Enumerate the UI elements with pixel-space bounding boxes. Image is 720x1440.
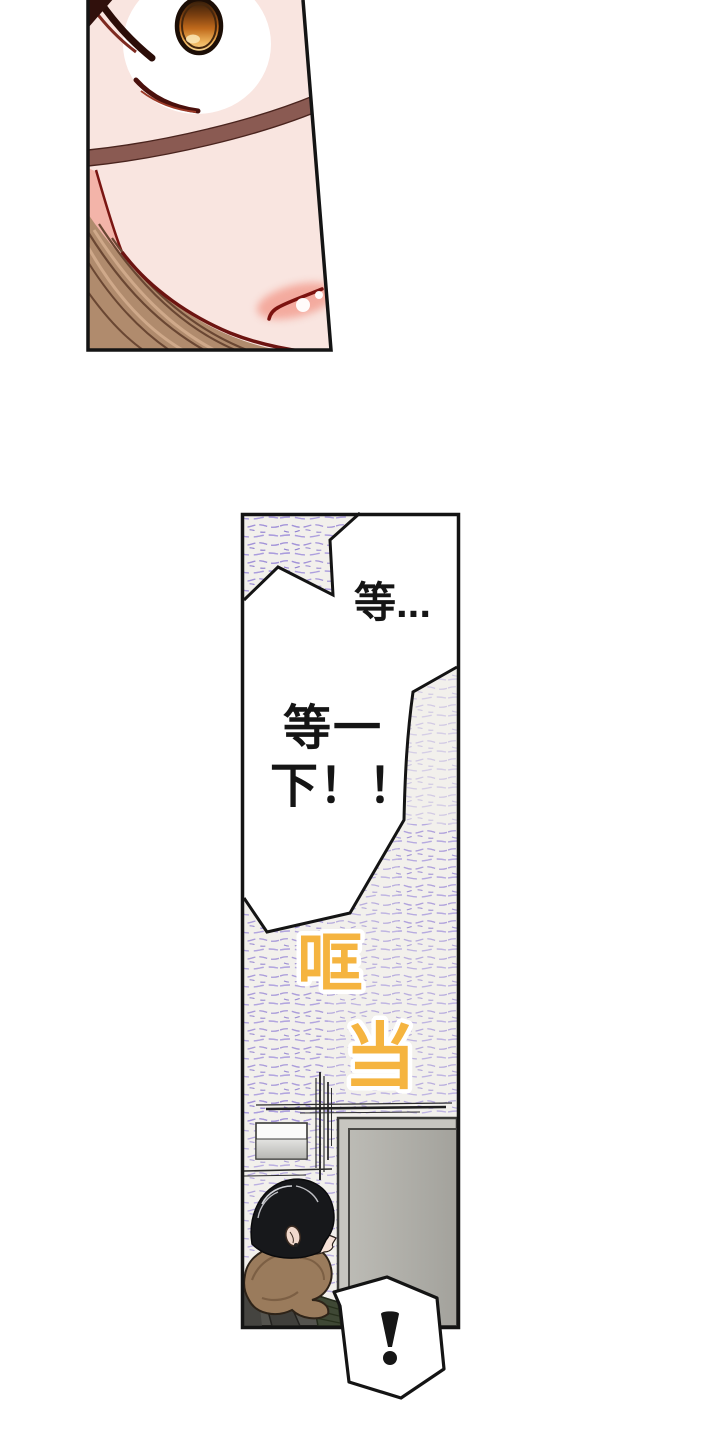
sfx-clang-2: 当 <box>344 1018 416 1098</box>
manga-page: 等... 等一 下！！ 哐 当 <box>0 0 720 1440</box>
exclamation-bubble <box>334 1277 444 1398</box>
manga-artwork: 等... 等一 下！！ 哐 当 <box>0 0 720 1440</box>
panel-face-closeup <box>80 0 340 357</box>
sfx-clang-1: 哐 <box>297 926 363 1000</box>
dialogue-wait-long-line2: 下！！ <box>270 760 417 813</box>
dialogue-wait-short: 等... <box>354 579 431 626</box>
panel-door-scene: 等... 等一 下！！ 哐 当 <box>243 513 459 1398</box>
earring <box>294 1243 298 1247</box>
eye-iris <box>177 0 221 53</box>
light-switch-plate <box>256 1123 307 1159</box>
dialogue-wait-long-line1: 等一 <box>283 702 383 755</box>
